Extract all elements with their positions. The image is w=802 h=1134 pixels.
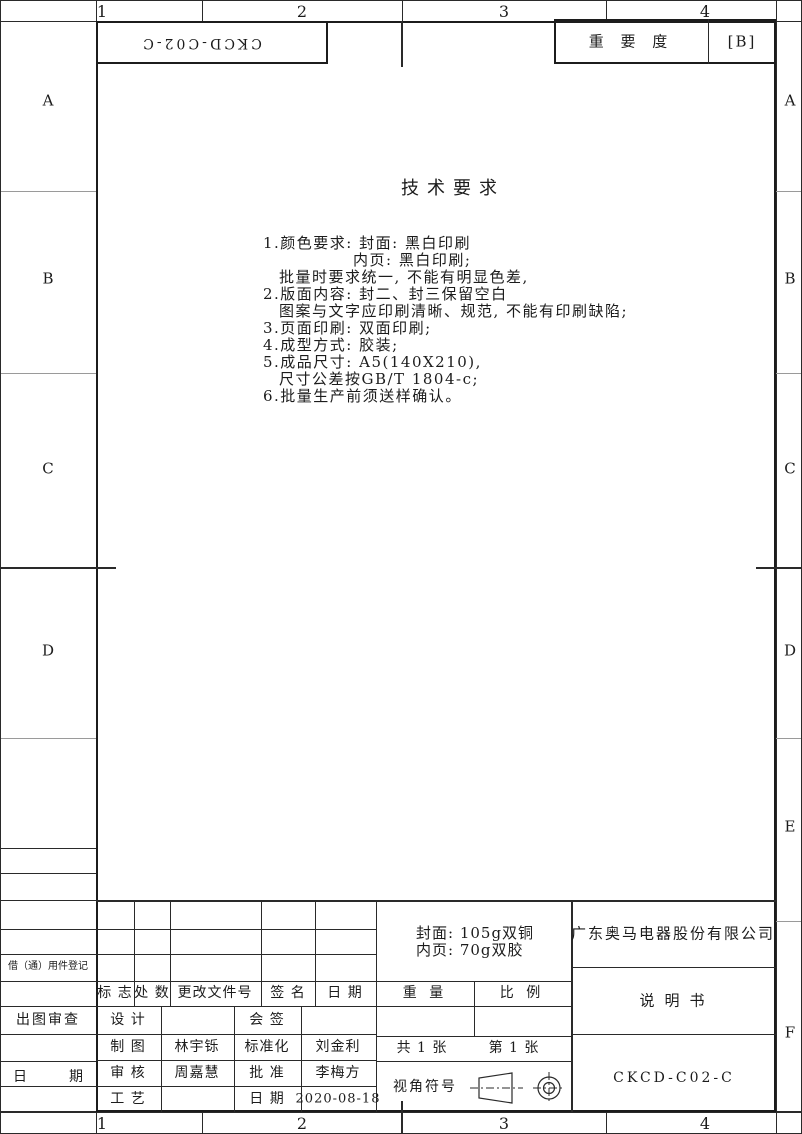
zone-divider [606,1,607,21]
importance-value: [B] [728,35,757,50]
tech-line-6: 3.页面印刷: 双面印刷; [263,320,432,337]
revision-row-line [96,954,376,955]
approver-label: 批 准 [249,1066,284,1080]
centering-mark-bottom [401,1101,403,1134]
zone-label-right-B: B [784,272,795,287]
process-label: 工 艺 [110,1092,145,1106]
sheets-total: 共 1 张 [397,1041,448,1055]
date-value: 2020-08-18 [296,1093,381,1106]
revision-row-line [96,981,571,982]
projection-symbol-icon [467,1065,577,1111]
right-section-line [571,1034,776,1035]
left-table-line [1,929,96,930]
drawing-sheet: 1 2 3 4 1 2 3 4 A B C D A B C D E F CKCD… [0,0,802,1134]
scale-label: 比 例 [500,986,544,1000]
tech-requirements-title: 技术要求 [401,180,505,198]
drafter-label: 制 图 [110,1040,145,1054]
left-table-line [1,900,96,901]
left-table-line [1,873,96,874]
revision-header-date: 日 期 [327,986,362,1000]
left-table-line [1,1006,96,1007]
signature-col-line [234,1006,235,1112]
checker-label: 审 核 [110,1066,145,1080]
zone-label-right-C: C [784,462,795,477]
titleblock-top-line [96,900,776,902]
importance-divider [708,19,709,64]
date-char-left: 日 [13,1066,27,1086]
zone-label-top-2: 2 [297,4,307,20]
tech-line-7: 4.成型方式: 胶装; [263,337,399,354]
signature-row-line [96,1060,376,1061]
material-inner: 内页: 70g双胶 [416,942,534,959]
signature-col-line [161,1006,162,1112]
left-table-line [1,954,96,955]
drafter-name: 林宇铄 [175,1040,220,1054]
zone-label-top-1: 1 [97,4,107,20]
zone-divider [1,373,96,374]
document-title: 说明书 [639,994,714,1009]
zone-label-right-D: D [784,644,796,659]
revision-row-line [96,1006,571,1007]
tech-line-3: 批量时要求统一, 不能有明显色差, [279,269,529,286]
tech-line-9: 尺寸公差按GB/T 1804-c; [279,371,479,388]
view-symbol-label: 视角符号 [393,1080,457,1094]
centering-mark-right [756,567,802,569]
checker-name: 周嘉慧 [175,1066,220,1080]
revision-header-fileno: 更改文件号 [178,986,253,1000]
zone-label-top-3: 3 [499,4,509,20]
middle-row-line [376,1061,571,1062]
left-table-line [1,1086,96,1087]
left-table-line [1,1034,96,1035]
revision-col-line [261,900,262,1006]
zone-divider [606,1112,607,1134]
weight-label: 重 量 [403,986,447,1000]
date-char-right: 期 [69,1066,83,1086]
zone-divider [776,738,802,739]
zone-label-left-C: C [42,462,53,477]
tech-line-10: 6.批量生产前须送样确认。 [263,388,462,405]
revision-header-signature: 签 名 [270,986,305,1000]
signature-row-line [96,1034,376,1035]
standardize-name: 刘金利 [316,1040,361,1054]
date-field-label: 日 期 [249,1092,284,1106]
zone-label-top-4: 4 [700,4,710,20]
tech-line-2: 内页: 黑白印刷; [353,252,471,269]
material-note: 封面: 105g双铜 内页: 70g双胶 [416,925,534,959]
importance-label: 重 要 度 [589,35,674,50]
centering-mark-top [401,21,403,67]
zone-divider [776,373,802,374]
zone-divider [402,1,403,21]
zone-divider [1,738,96,739]
weight-scale-divider [474,981,475,1036]
approver-name: 李梅方 [316,1066,361,1080]
zone-divider [202,1112,203,1134]
zone-divider [776,921,802,922]
zone-divider [202,1,203,21]
zone-label-right-E: E [785,820,796,835]
middle-row-line [376,1036,571,1037]
zone-label-bottom-4: 4 [700,1116,710,1132]
zone-label-left-A: A [43,94,54,109]
revision-header-count: 处 数 [134,986,169,1000]
left-table-line [1,848,96,849]
tech-line-5: 图案与文字应印刷清晰、规范, 不能有印刷缺陷; [279,303,628,320]
zone-label-bottom-1: 1 [97,1116,107,1132]
zone-label-right-A: A [785,94,796,109]
revision-col-line [170,900,171,1006]
sheets-number: 第 1 张 [489,1041,540,1055]
plot-review-label: 出图审查 [16,1013,80,1027]
standardize-label: 标准化 [245,1040,290,1054]
revision-row-line [96,929,376,930]
left-table-line [1,1061,96,1062]
countersign-label: 会 签 [249,1013,284,1027]
material-cover: 封面: 105g双铜 [416,925,534,942]
revision-col-line [315,900,316,1006]
zone-label-right-F: F [785,1026,795,1041]
zone-label-left-B: B [42,272,53,287]
zone-label-bottom-3: 3 [499,1116,509,1132]
drawing-number: CKCD-C02-C [613,1071,735,1085]
left-table-line [1,981,96,982]
zone-label-left-D: D [42,644,54,659]
company-name: 广东奥马电器股份有限公司 [571,927,775,942]
tech-line-8: 5.成品尺寸: A5(140X210), [263,354,482,371]
centering-mark-left [1,567,116,569]
borrow-register-label: 借（通）用件登记 [8,962,88,972]
right-section-line [571,967,776,968]
zone-divider [1,191,96,192]
zone-label-bottom-2: 2 [297,1116,307,1132]
rotated-doc-number: CKCD-C02-C [140,36,262,50]
tech-line-1: 1.颜色要求: 封面: 黑白印刷 [263,235,471,252]
revision-header-mark: 标 志 [97,986,132,1000]
date-label-row: 日 期 [13,1066,83,1086]
zone-divider [776,191,802,192]
tech-line-4: 2.版面内容: 封二、封三保留空白 [263,286,508,303]
signature-row-line [96,1086,376,1087]
design-label: 设 计 [110,1013,145,1027]
